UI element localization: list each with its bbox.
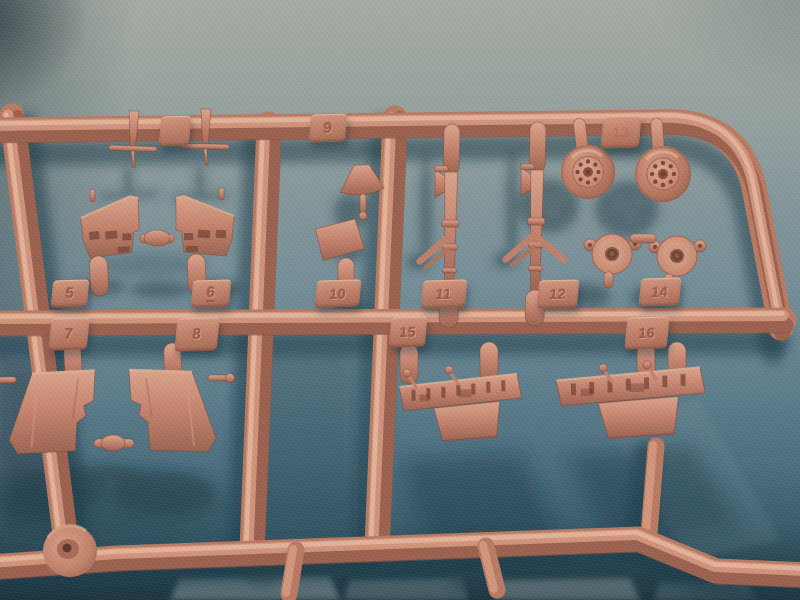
- sprue-graphic: [0, 0, 800, 600]
- main-wheel-right-part13: [635, 146, 691, 202]
- part-tag-12: 12: [537, 279, 580, 308]
- part-number: 16: [638, 325, 656, 341]
- part-number: 11: [435, 286, 452, 302]
- part-number: 8: [192, 326, 203, 343]
- part-tag-5: 5: [51, 280, 90, 308]
- main-wheel-left-part13: [561, 145, 615, 199]
- door-link: [94, 435, 134, 451]
- instrument-panel-part15: [399, 374, 523, 442]
- part-tag-blank: [159, 116, 192, 147]
- gear-door-part8: [129, 370, 235, 452]
- part-tag-6: 6: [191, 280, 232, 308]
- part-tag-15: 15: [388, 317, 427, 348]
- part-number: 15: [399, 324, 417, 340]
- part-tag-13: 13: [600, 116, 641, 149]
- part-tag-7: 7: [48, 318, 89, 351]
- hub-link: [630, 234, 656, 243]
- part-number: 14: [651, 284, 669, 300]
- part-number: 10: [329, 285, 347, 301]
- part-number: 5: [65, 285, 76, 302]
- part-tag-16: 16: [624, 316, 669, 349]
- part-tag-10: 10: [315, 279, 362, 307]
- hub-stub: [604, 272, 613, 288]
- part-tag-11: 11: [421, 279, 468, 308]
- hub-cover-right-part14: [649, 236, 706, 276]
- panel-link: [140, 230, 174, 246]
- runner-bulb: [89, 256, 109, 297]
- part-tag-8: 8: [174, 317, 219, 351]
- part-tag-9: 9: [309, 114, 348, 143]
- part-number: 6: [206, 285, 217, 303]
- part-tag-14: 14: [639, 277, 682, 306]
- part-number: 12: [549, 286, 567, 302]
- part-number: 7: [64, 325, 75, 342]
- part-number: 9: [323, 119, 334, 136]
- part-number: 13: [612, 124, 630, 140]
- sprue-gate-boss: [43, 525, 97, 577]
- sprue-photo: 9 13 5 6 10 11 12 14 7 8 15 16: [0, 0, 800, 600]
